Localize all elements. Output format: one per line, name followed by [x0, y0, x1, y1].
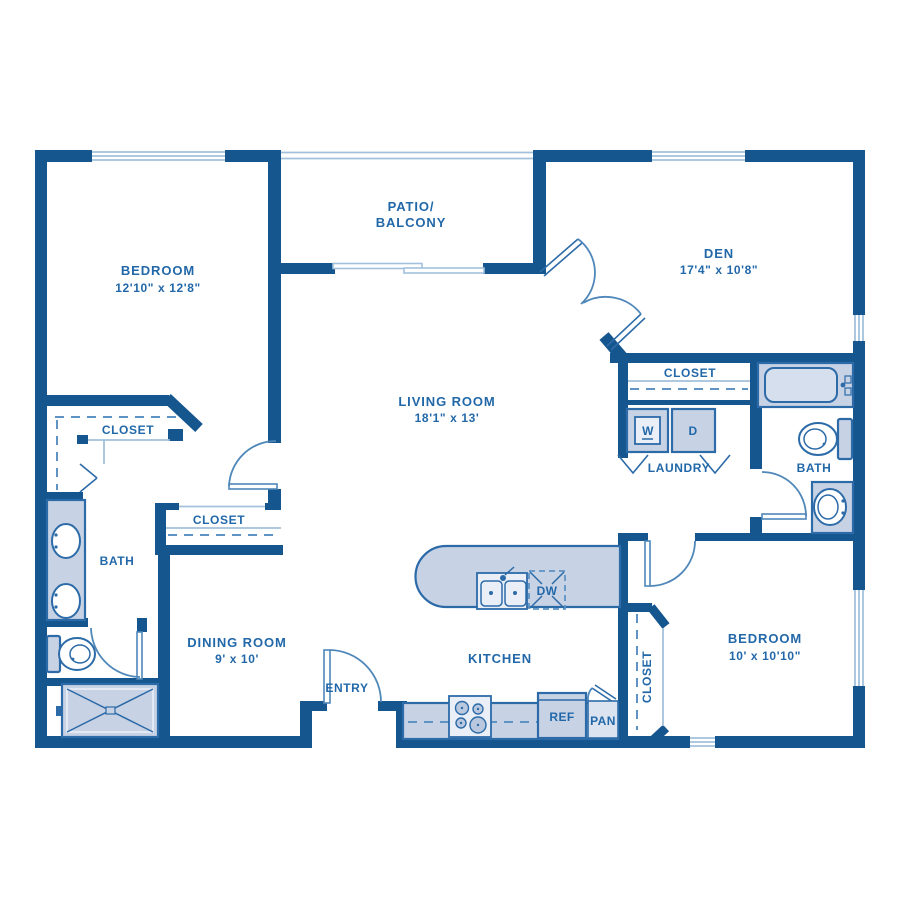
bathtub-icon: [758, 363, 853, 407]
wall-dining-left: [158, 555, 170, 736]
wall-right-a: [853, 162, 865, 308]
label-living-room: LIVING ROOM: [398, 394, 495, 409]
sliding-door-panel-2: [404, 268, 484, 273]
window-den-top: [645, 150, 752, 162]
wall-bedroom1-right: [268, 150, 281, 443]
wall-left: [35, 150, 47, 748]
wall-top-den-a: [533, 150, 645, 162]
dims-den: 17'4" x 10'8": [680, 263, 758, 277]
wall-closet4-chamfer-top: [651, 607, 666, 626]
door-bath-right: [762, 472, 806, 519]
toilet-left-icon: [47, 636, 95, 672]
label-closet-bedroom1: CLOSET: [102, 423, 154, 437]
floor-plan-page: BEDROOM 12'10" x 12'8" PATIO/ BALCONY DE…: [0, 0, 900, 900]
wall-patio-bottom-a: [281, 263, 335, 274]
wall-bottom-right: [722, 736, 865, 748]
toilet-right-icon: [799, 419, 852, 459]
closet1-door-leaf-2: [80, 478, 97, 492]
kitchen-island: [415, 546, 620, 609]
label-washer: W: [642, 424, 654, 438]
stove-icon: [449, 696, 491, 737]
door-den-french-a: [540, 239, 595, 304]
room-labels: BEDROOM 12'10" x 12'8" PATIO/ BALCONY DE…: [100, 199, 832, 728]
dims-bedroom1: 12'10" x 12'8": [115, 281, 201, 295]
label-patio-line2: BALCONY: [376, 215, 447, 230]
kitchen-sink-icon: [477, 567, 527, 609]
wall-bedroom1-bottom: [35, 395, 169, 406]
shower-icon: [56, 684, 158, 737]
label-dining-room: DINING ROOM: [187, 635, 286, 650]
label-laundry: LAUNDRY: [648, 461, 710, 475]
label-dishwasher: DW: [537, 584, 558, 598]
label-closet-hall: CLOSET: [193, 513, 245, 527]
wall-toilet-door-stub: [137, 618, 147, 632]
wall-corridor-b: [695, 533, 853, 541]
closet1-door-leaf: [80, 464, 97, 478]
label-closet-bedroom2: CLOSET: [640, 651, 654, 703]
label-bath-right: BATH: [797, 461, 832, 475]
window-bedroom2-bottom: [683, 736, 722, 748]
wall-den-bottom: [610, 353, 865, 363]
door-toilet-room: [91, 628, 142, 679]
door-entry: [324, 650, 381, 703]
sink-icon: [52, 584, 80, 618]
label-bedroom1: BEDROOM: [121, 263, 195, 278]
label-pantry: PAN: [590, 714, 616, 728]
door-hallway: [229, 441, 277, 489]
wall-right-b: [853, 348, 865, 583]
closet1-jamb-right: [168, 429, 183, 441]
label-dryer: D: [688, 424, 697, 438]
window-bedroom1-top: [85, 150, 232, 162]
wall-entry-step-left: [300, 701, 312, 748]
dims-bedroom2: 10' x 10'10": [729, 649, 801, 663]
closet-laundry-shelf: [628, 381, 750, 389]
vanity-double-left: [47, 500, 85, 620]
closet2-jamb-right: [265, 503, 281, 510]
dims-living-room: 18'1" x 13': [415, 411, 480, 425]
closet1-jamb-left: [77, 435, 88, 444]
window-bedroom2-right: [853, 583, 865, 693]
wall-closet1-diagonal: [167, 398, 199, 428]
floor-plan-drawing: BEDROOM 12'10" x 12'8" PATIO/ BALCONY DE…: [0, 0, 900, 900]
door-pantry: [588, 685, 616, 702]
door-bedroom2: [645, 541, 695, 586]
label-closet-laundry: CLOSET: [664, 366, 716, 380]
wall-top-den-b: [745, 150, 865, 162]
label-refrigerator: REF: [549, 710, 574, 724]
vanity-right: [812, 482, 853, 533]
label-entry: ENTRY: [325, 681, 368, 695]
label-bath-left: BATH: [100, 554, 135, 568]
wall-closet3-bottom: [618, 400, 753, 405]
dims-dining-room: 9' x 10': [215, 652, 259, 666]
wall-closet2-bottom: [155, 545, 283, 555]
kitchen-counter: [403, 693, 618, 739]
closet2-jamb-left: [166, 503, 179, 510]
label-kitchen: KITCHEN: [468, 651, 532, 666]
label-den: DEN: [704, 246, 734, 261]
wall-top-bedroom1-a: [35, 150, 85, 162]
label-patio-line1: PATIO/: [388, 199, 435, 214]
label-bedroom2: BEDROOM: [728, 631, 802, 646]
window-den-right: [853, 308, 865, 348]
wall-den-left: [533, 150, 546, 270]
sink-icon: [52, 524, 80, 558]
